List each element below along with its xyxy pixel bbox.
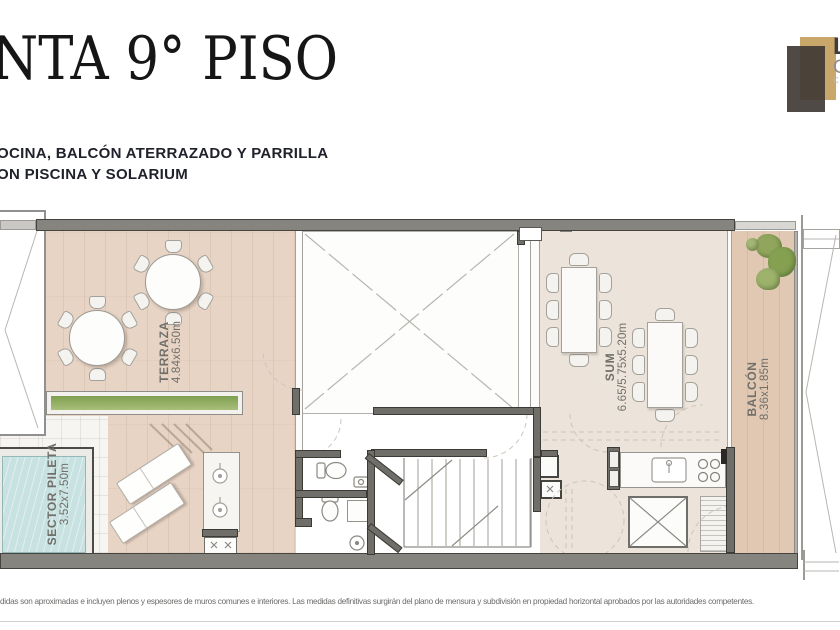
chair — [546, 300, 559, 320]
wall-bottom — [0, 553, 798, 569]
chair — [89, 368, 106, 381]
balcon-door-tick — [721, 449, 727, 464]
kitchen-tall-unit-1 — [609, 451, 619, 468]
chair — [632, 328, 645, 348]
wall-grill — [202, 529, 238, 537]
wall-kitchen-right — [726, 447, 735, 553]
shrub-icon — [746, 238, 759, 251]
wall-corridor-top — [373, 407, 541, 415]
wall-shaft-top — [541, 450, 558, 457]
chair — [655, 308, 675, 321]
sum-door-sill — [519, 227, 542, 241]
round-table-2 — [69, 310, 125, 366]
round-table-top — [69, 310, 125, 366]
wall-stub-terraza — [292, 388, 300, 415]
kitchen-tall-unit-2 — [609, 470, 619, 487]
toilet2-bowl — [322, 501, 338, 521]
wall-corridor-bottom — [371, 449, 487, 457]
floorplan-page: NTA 9° PISO OCINA, BALCÓN ATERRAZADO Y P… — [0, 0, 840, 630]
wall-top — [36, 219, 735, 231]
chair — [685, 382, 698, 402]
wall-bath-mid — [295, 490, 367, 498]
chair — [569, 253, 589, 266]
wall-stair-right — [533, 457, 541, 512]
chair — [569, 354, 589, 367]
chair — [632, 382, 645, 402]
room-label-sum: SUM 6.65/5.75x5.20m — [602, 312, 632, 422]
toilet-bowl — [326, 463, 346, 479]
shrub-icon — [756, 268, 780, 290]
chair — [655, 409, 675, 422]
footer-divider — [0, 621, 840, 622]
room-label-balcon: BALCÓN 8.36x1.85m — [744, 334, 774, 444]
wall-bath-left-cap — [295, 518, 312, 527]
chair — [546, 273, 559, 293]
disclaimer-text: didas son aproximadas e incluyen plenos … — [0, 597, 840, 606]
sum-table-top — [561, 267, 597, 353]
wall-bath-left — [295, 450, 303, 527]
wall-top-left-light — [0, 220, 36, 230]
chair — [685, 355, 698, 375]
room-label-terraza: TERRAZA 4.84x6.50m — [156, 297, 186, 407]
sum-table-top — [647, 322, 683, 408]
chair — [89, 296, 106, 309]
wall-top-right-light — [735, 221, 796, 230]
wall-bath-top — [295, 450, 341, 458]
toilet-tank — [317, 463, 325, 478]
chair — [546, 327, 559, 347]
chair — [599, 273, 612, 293]
wall-core-right — [533, 407, 541, 457]
chair — [165, 240, 182, 253]
sum-table-2 — [631, 308, 699, 422]
chair — [632, 355, 645, 375]
stove-burners — [699, 460, 720, 482]
room-label-sector-pileta: SECTOR PILETA 3.52x7.50m — [44, 439, 74, 549]
chair — [685, 328, 698, 348]
